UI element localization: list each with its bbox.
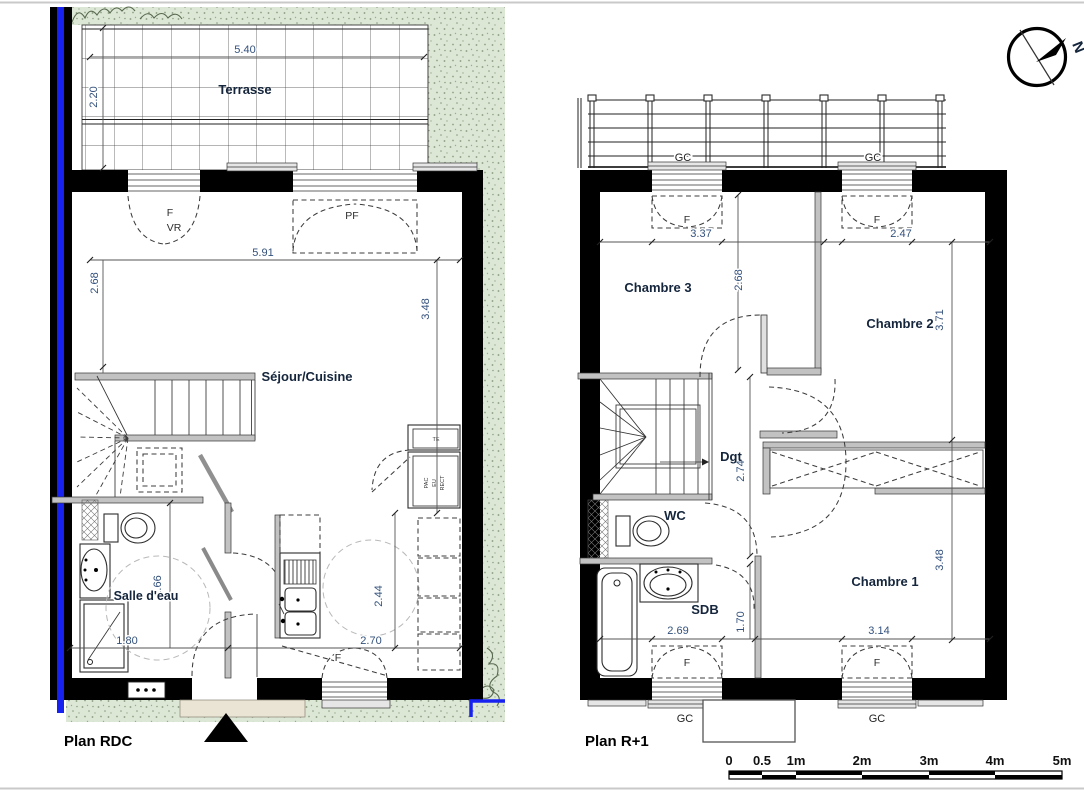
room-label-salle-eau: Salle d'eau	[114, 589, 179, 603]
dim-ch1-w: 3.14	[868, 625, 889, 637]
te-label: TE	[432, 437, 439, 443]
north-compass: N	[1009, 29, 1084, 86]
rect-label: RECT	[440, 475, 446, 491]
scale-tick-3m: 3m	[920, 753, 939, 768]
entrance-door-swing	[192, 614, 256, 676]
dim-ch3-d: 2.68	[733, 269, 745, 290]
dim-ch2-w: 2.47	[890, 228, 911, 240]
opening-f-ch3: F	[684, 214, 690, 226]
pac-label: PAC	[424, 478, 430, 489]
room-label-chambre3: Chambre 3	[624, 280, 691, 295]
wc-room	[616, 516, 669, 546]
north-label: N	[1068, 39, 1084, 55]
door-swing-wc	[705, 503, 757, 556]
opening-f-top: F	[167, 207, 173, 219]
room-label-sejour: Séjour/Cuisine	[261, 369, 352, 384]
dim-sdb-w: 2.69	[667, 625, 688, 637]
dim-sejour-left: 2.68	[89, 272, 101, 293]
opening-f-bottom: F	[335, 652, 341, 664]
dim-sejour-right: 3.48	[420, 298, 432, 319]
scale-tick-0: 0	[725, 753, 732, 768]
hatched-wall-wc	[588, 500, 608, 558]
opening-vr: VR	[167, 222, 182, 234]
dim-salle-eau-w: 1.80	[116, 635, 137, 647]
gc-bottom-left: GC	[677, 713, 694, 725]
balcony-railing: GC GC	[578, 95, 946, 168]
opening-f-ch2: F	[874, 214, 880, 226]
plan-r1-title: Plan R+1	[585, 733, 649, 750]
door-swing-ch3	[700, 315, 761, 377]
stairs-rdc	[75, 373, 255, 512]
scale-bar-segments	[729, 771, 1062, 779]
opening-pf: PF	[345, 210, 358, 222]
floor-plan-sheet: TE PAC EU RECT	[0, 0, 1084, 800]
plan-rdc: TE PAC EU RECT	[50, 7, 505, 750]
south-sill	[322, 700, 390, 708]
scale-tick-2m: 2m	[853, 753, 872, 768]
room-label-wc: WC	[664, 508, 686, 523]
dim-ch3-w: 3.37	[690, 228, 711, 240]
scale-tick-1m: 1m	[787, 753, 806, 768]
dim-terrasse-w: 5.40	[234, 44, 255, 56]
entrance-opening	[192, 678, 257, 700]
door-swing-ch2	[782, 379, 835, 433]
technical-closets: TE PAC EU RECT	[372, 425, 460, 508]
property-line-blue	[57, 7, 64, 713]
gc-bottom-right: GC	[869, 713, 886, 725]
dim-cuisine-d: 2.44	[373, 585, 385, 606]
room-label-chambre2: Chambre 2	[866, 316, 933, 331]
stair-direction-arrow	[702, 459, 709, 466]
entrance-porch	[703, 700, 795, 742]
dim-sdb-d: 1.70	[735, 611, 747, 632]
door-leaf-ch2	[761, 315, 767, 373]
turning-circle-kitchen	[323, 540, 419, 636]
kitchen-dashed-units	[418, 518, 460, 670]
doormat	[180, 700, 305, 717]
salle-deau	[52, 497, 285, 678]
room-label-sdb: SDB	[691, 602, 718, 617]
dim-ch2-d: 3.71	[934, 309, 946, 330]
room-label-chambre1: Chambre 1	[851, 574, 918, 589]
scale-bar: 0 0.5 1m 2m 3m 4m 5m	[725, 753, 1071, 779]
plan-r1: GC GC	[578, 95, 1007, 750]
r1-partitions	[580, 192, 985, 678]
dim-sejour-w: 5.91	[252, 247, 273, 259]
dim-cuisine-w: 2.70	[360, 635, 381, 647]
washbasin	[80, 544, 110, 598]
closet	[770, 450, 983, 488]
plan-rdc-title: Plan RDC	[64, 733, 133, 750]
dim-ch1-d: 3.48	[934, 549, 946, 570]
door-swing-sdb	[716, 565, 754, 611]
scale-tick-05: 0.5	[753, 753, 771, 768]
opening-f-ch1: F	[874, 657, 880, 669]
opening-f-sdb: F	[684, 657, 690, 669]
dim-terrasse-d: 2.20	[88, 86, 100, 107]
scale-tick-5m: 5m	[1053, 753, 1072, 768]
floor-plan-drawing: TE PAC EU RECT	[0, 0, 1084, 800]
cooktop	[284, 560, 316, 584]
faucet	[280, 597, 284, 601]
toilet	[104, 513, 155, 543]
hatched-wall	[82, 500, 98, 540]
scale-tick-4m: 4m	[986, 753, 1005, 768]
compass-axis	[1020, 30, 1054, 85]
room-label-dgt: Dgt	[720, 449, 742, 464]
room-label-terrasse: Terrasse	[218, 82, 271, 97]
